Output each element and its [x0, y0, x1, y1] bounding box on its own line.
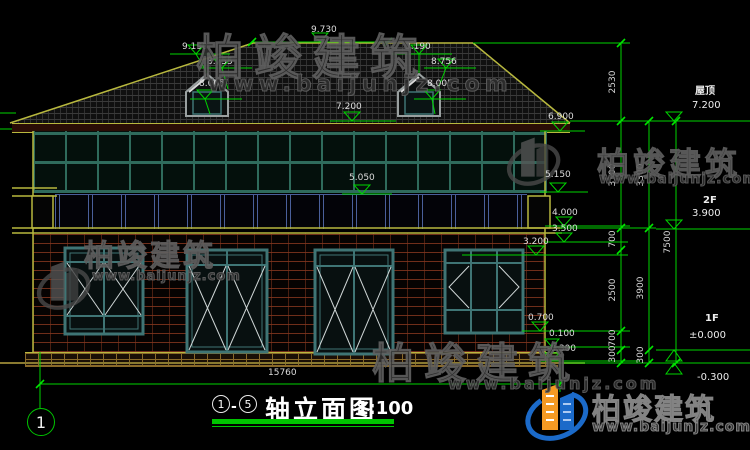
title-axis-start: 1 — [218, 398, 225, 411]
watermark-url: www.baijunjz.com — [599, 171, 750, 187]
elev-slab-top: 4.000 — [552, 208, 578, 218]
elev-roof-deck: 7.200 — [336, 102, 362, 112]
vdim-7500: 7500 — [663, 231, 673, 254]
elev-sill: 0.700 — [528, 313, 554, 323]
axis-bubble-number: 1 — [36, 413, 46, 432]
elev-rail-mid: 5.050 — [349, 173, 375, 183]
level-2f-value: 3.900 — [692, 208, 721, 219]
level-roof-value: 7.200 — [692, 100, 721, 111]
vdim-700b: 700 — [608, 329, 618, 346]
drawing-scale: 1:100 — [356, 398, 413, 419]
window-right — [445, 250, 523, 333]
watermark-url: www.baijunjz.com — [92, 269, 241, 284]
elev-slab-bottom: 3.500 — [552, 224, 578, 234]
level-2f-label: 2F — [703, 195, 717, 206]
title-underline-thick — [212, 419, 394, 424]
vdim-300a: 300 — [608, 345, 618, 362]
elev-rail-right: 5.150 — [545, 170, 571, 180]
level-1f-label: 1F — [705, 313, 719, 324]
vdim-700a: 700 — [608, 230, 618, 247]
vdim-2500: 2500 — [608, 279, 618, 302]
dim-total-width: 15760 — [268, 368, 297, 378]
vdim-300b: 300 — [636, 346, 646, 363]
title-axis-end-circle: 5 — [239, 395, 257, 413]
level-roof-label: 屋顶 — [695, 86, 715, 97]
vdim-3900: 3900 — [636, 277, 646, 300]
level-ground-value: -0.300 — [697, 372, 729, 383]
vdim-2530: 2530 — [608, 71, 618, 94]
axis-bubble-1: 1 — [27, 408, 55, 436]
title-axis-end: 5 — [245, 398, 252, 411]
watermark-url: www.baijunjz.com — [208, 72, 513, 97]
level-1f-value: ±0.000 — [689, 330, 726, 341]
title-underline-thin — [212, 426, 394, 427]
elev-opening-top: 3.200 — [523, 237, 549, 247]
title-axis-start-circle: 1 — [212, 395, 230, 413]
cad-elevation-drawing: 9.730 9.190 8.755 8.005 9.190 8.756 8.00… — [0, 0, 750, 450]
brand-logo-url: www.baijunjz.com — [592, 419, 750, 435]
elev-eave-right: 6.900 — [548, 112, 574, 122]
title-axis-separator: - — [231, 399, 237, 415]
brand-logo-icon — [521, 384, 592, 447]
elev-dormer-r-eave: 8.756 — [431, 57, 457, 67]
